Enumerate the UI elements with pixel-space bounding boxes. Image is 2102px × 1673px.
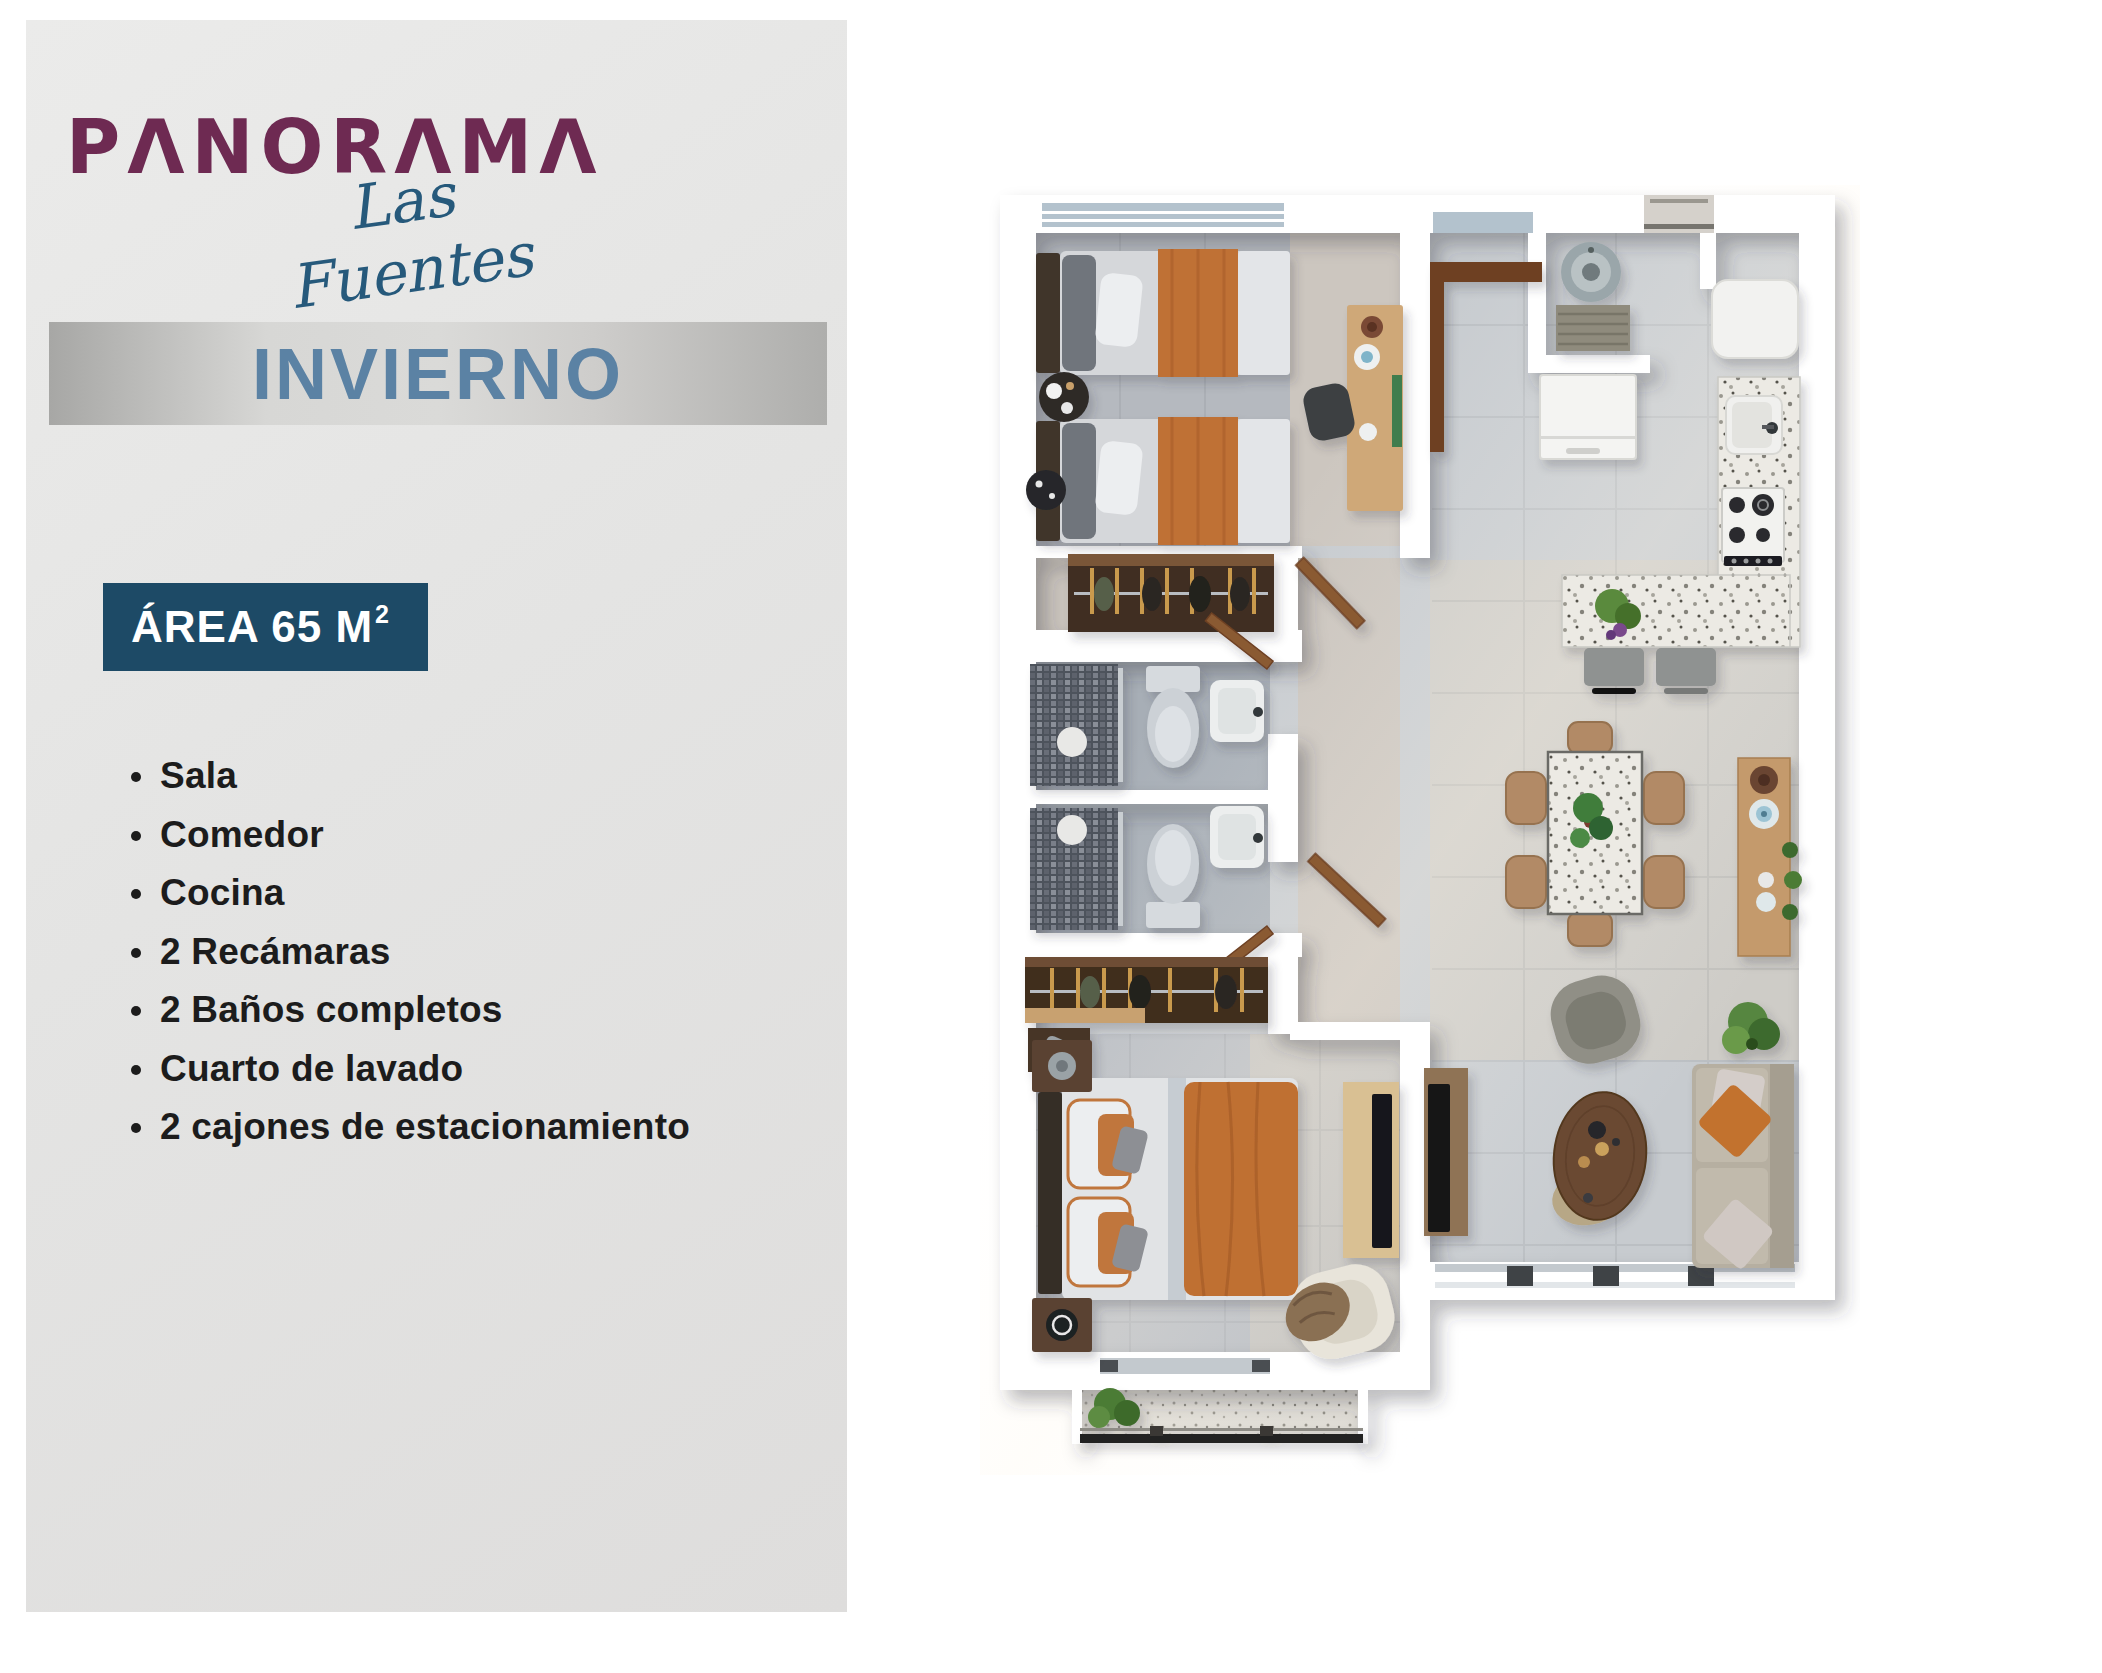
living-tv <box>1428 1084 1450 1232</box>
appliance-niche <box>1712 280 1798 358</box>
model-name: INVIERNO <box>252 333 624 415</box>
dining-chair-top <box>1568 722 1612 754</box>
wall-corridor-b <box>1268 734 1298 862</box>
window-entry <box>1433 212 1533 233</box>
wall-kitchen-niche <box>1700 233 1716 289</box>
floor-plan-svg <box>980 185 1860 1475</box>
feature-item-banos: 2 Baños completos <box>129 981 690 1040</box>
bar-stool-2 <box>1656 648 1716 686</box>
area-label: ÁREA 65 M <box>131 602 373 652</box>
bar-stool-1-back <box>1592 688 1636 694</box>
master-bed <box>1038 1078 1298 1300</box>
ottoman-dotted <box>1026 470 1066 510</box>
nightstand-bottom <box>1032 1298 1092 1352</box>
entry-door-threshold <box>1644 224 1714 229</box>
sofa <box>1692 1064 1794 1271</box>
window-bedroom2-mullion <box>1042 211 1284 214</box>
wardrobe-bedroom2 <box>1068 554 1274 632</box>
info-panel: PΛNORΛMΛ Las Fuentes INVIERNO ÁREA 65 M2… <box>26 20 847 1612</box>
feature-item-cocina: Cocina <box>129 864 690 923</box>
feature-item-sala: Sala <box>129 747 690 806</box>
nightstand-round <box>1039 372 1089 422</box>
wall-laundry-south <box>1528 355 1650 373</box>
bar-stool-2-back <box>1664 688 1708 694</box>
area-superscript: 2 <box>375 600 390 629</box>
entry-door-step <box>1650 199 1708 203</box>
feature-list: Sala Comedor Cocina 2 Recámaras 2 Baños … <box>129 747 690 1157</box>
feature-item-estacionamiento: 2 cajones de estacionamiento <box>129 1098 690 1157</box>
wall-laundry-west <box>1528 233 1546 373</box>
wall-closet2-east <box>1268 938 1298 1034</box>
ottoman-dot-2 <box>1049 493 1055 499</box>
stove <box>1722 488 1784 566</box>
desk <box>1347 305 1403 511</box>
wall-bath-divider <box>1022 790 1272 804</box>
kitchen-sink <box>1726 396 1782 454</box>
master-tv-stand <box>1343 1082 1399 1258</box>
area-banner: ÁREA 65 M2 <box>103 583 428 671</box>
wall-right <box>1799 195 1835 1300</box>
twin-bed-2 <box>1036 417 1290 545</box>
balcony-rail <box>1080 1434 1363 1443</box>
dining-chair-bottom <box>1568 912 1612 946</box>
window-bedroom2 <box>1042 203 1284 227</box>
dining-chair-left-2 <box>1506 856 1546 908</box>
living-window-frame-3 <box>1688 1266 1714 1286</box>
feature-item-lavado: Cuarto de lavado <box>129 1040 690 1099</box>
master-window-sill <box>1100 1358 1270 1374</box>
wall-entry <box>1400 233 1430 558</box>
floor-plan-render <box>980 185 1860 1475</box>
nightstand-top <box>1032 1040 1092 1092</box>
window-bedroom2-mullion-2 <box>1042 219 1284 222</box>
master-window-frame-1 <box>1100 1360 1118 1372</box>
feature-item-recamaras: 2 Recámaras <box>129 923 690 982</box>
feature-item-comedor: Comedor <box>129 806 690 865</box>
living-window-frame-1 <box>1507 1266 1533 1286</box>
model-banner: INVIERNO <box>49 322 827 425</box>
ottoman-dot-1 <box>1036 481 1043 488</box>
dining-chair-right-2 <box>1644 856 1684 908</box>
twin-bed-1 <box>1036 249 1290 377</box>
living-tv-console <box>1424 1068 1468 1236</box>
master-window-frame-2 <box>1252 1360 1270 1372</box>
dining-chair-right-1 <box>1644 772 1684 824</box>
dining-chair-left-1 <box>1506 772 1546 824</box>
bar-stool-1 <box>1584 648 1644 686</box>
living-window-frame-2 <box>1593 1266 1619 1286</box>
refrigerator <box>1540 375 1636 459</box>
